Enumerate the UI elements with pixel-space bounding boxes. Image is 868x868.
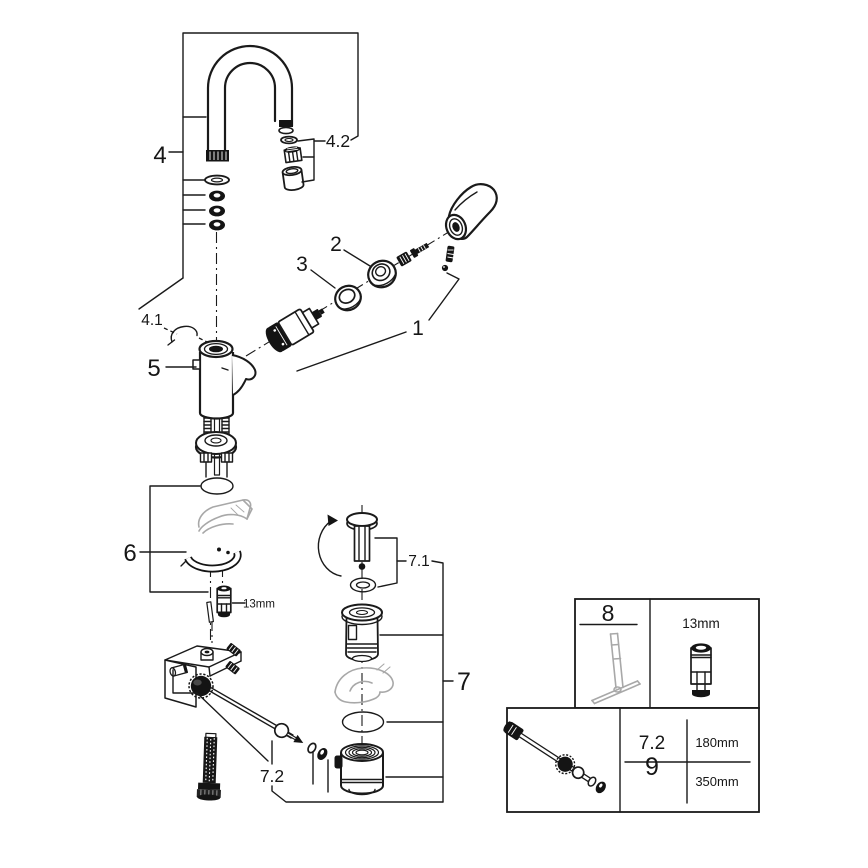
rod-knob (189, 674, 213, 698)
escutcheon-ghost (199, 500, 252, 533)
plug-seal-ring (351, 578, 376, 592)
callout-4-1: 4.1 (141, 312, 163, 329)
socket-size-label: 13mm (243, 599, 275, 611)
body-cylinder (200, 352, 233, 419)
table-length-350: 350mm (695, 774, 738, 789)
callout-7-1: 7.1 (408, 553, 430, 570)
callout-6: 6 (123, 540, 136, 567)
faucet-exploded-diagram: 4 (0, 0, 868, 868)
callout-1: 1 (412, 317, 424, 340)
tool-socket-size-label: 13mm (682, 616, 720, 631)
popup-plug (318, 513, 377, 576)
tool-label: 8 (602, 600, 615, 626)
spout-clip-group: 4.1 (141, 312, 211, 345)
spout-group: 4 (139, 33, 358, 309)
spout-outlet-end (279, 127, 293, 133)
diagram-page: 4 (0, 0, 868, 868)
crescent-washer (181, 548, 238, 569)
table-part-72: 7.2 (639, 733, 665, 754)
callout-7: 7 (457, 668, 471, 696)
cap-ring (364, 256, 401, 292)
fixation-group: 6 13mm (123, 478, 275, 622)
flex-hose (197, 733, 223, 801)
waste-group: 7.1 (318, 513, 471, 802)
handle-lever (443, 184, 497, 242)
base-o-ring (201, 478, 233, 494)
callout-5: 5 (147, 355, 160, 382)
socket-13mm: 13mm (207, 586, 275, 623)
drain-upper-body (342, 605, 382, 662)
table-part-9: 9 (645, 753, 659, 781)
callout-3: 3 (296, 253, 308, 276)
info-box-lower (507, 708, 759, 812)
aerator-insert (284, 145, 302, 162)
handle-pin-screw (442, 246, 455, 272)
cartridge (262, 299, 330, 355)
handle-adapter (396, 251, 412, 267)
callout-7-2: 7.2 (260, 766, 284, 786)
popup-rod (205, 682, 330, 762)
callout-4: 4 (153, 142, 166, 169)
drain-clamp-ghost (335, 664, 393, 703)
handle-screw (410, 241, 431, 258)
waste-o-ring (343, 712, 384, 732)
waste-threaded-socket (335, 744, 384, 795)
table-length-180: 180mm (695, 735, 738, 750)
callout-4-2: 4.2 (326, 131, 350, 151)
pin (207, 602, 214, 623)
info-box: 8 13mm (500, 599, 759, 812)
callout-2: 2 (330, 233, 342, 256)
spout-o-rings (205, 176, 229, 231)
aerator-cap (282, 166, 304, 191)
callouts-1-2-3: 2 3 1 (296, 233, 459, 371)
aerator-group: 4.2 (281, 131, 350, 191)
body-spout-socket (232, 355, 255, 395)
body-group: 5 (147, 341, 255, 477)
